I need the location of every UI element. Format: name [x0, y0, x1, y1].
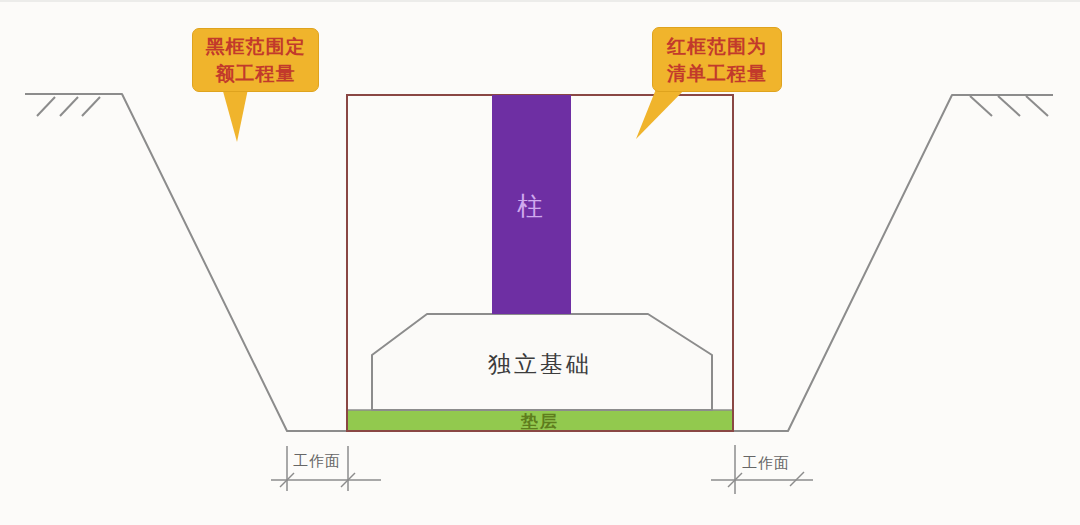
working-face-label-left: 工作面 [293, 452, 341, 471]
diagram-canvas: 黑框范围定 额工程量 红框范围为 清单工程量 柱 独立基础 垫层 工作面 工作面 [0, 0, 1080, 525]
excavation-drawing [0, 2, 1080, 525]
callout-list-line1: 红框范围为 [667, 33, 767, 60]
callout-quota-line2: 额工程量 [216, 60, 296, 87]
ground-hatch-right [970, 96, 1048, 116]
callout-right-tail [636, 84, 690, 139]
foundation-label: 独立基础 [488, 349, 592, 380]
working-face-label-right: 工作面 [742, 454, 790, 473]
column-label: 柱 [517, 189, 545, 224]
callout-quota-line1: 黑框范围定 [206, 33, 306, 60]
callout-quota-quantity: 黑框范围定 额工程量 [192, 28, 319, 92]
callout-list-quantity: 红框范围为 清单工程量 [652, 27, 782, 92]
cushion-label: 垫层 [521, 410, 559, 433]
callout-list-line2: 清单工程量 [667, 60, 767, 87]
ground-hatch-left [37, 97, 100, 116]
callout-left-tail [221, 84, 249, 142]
